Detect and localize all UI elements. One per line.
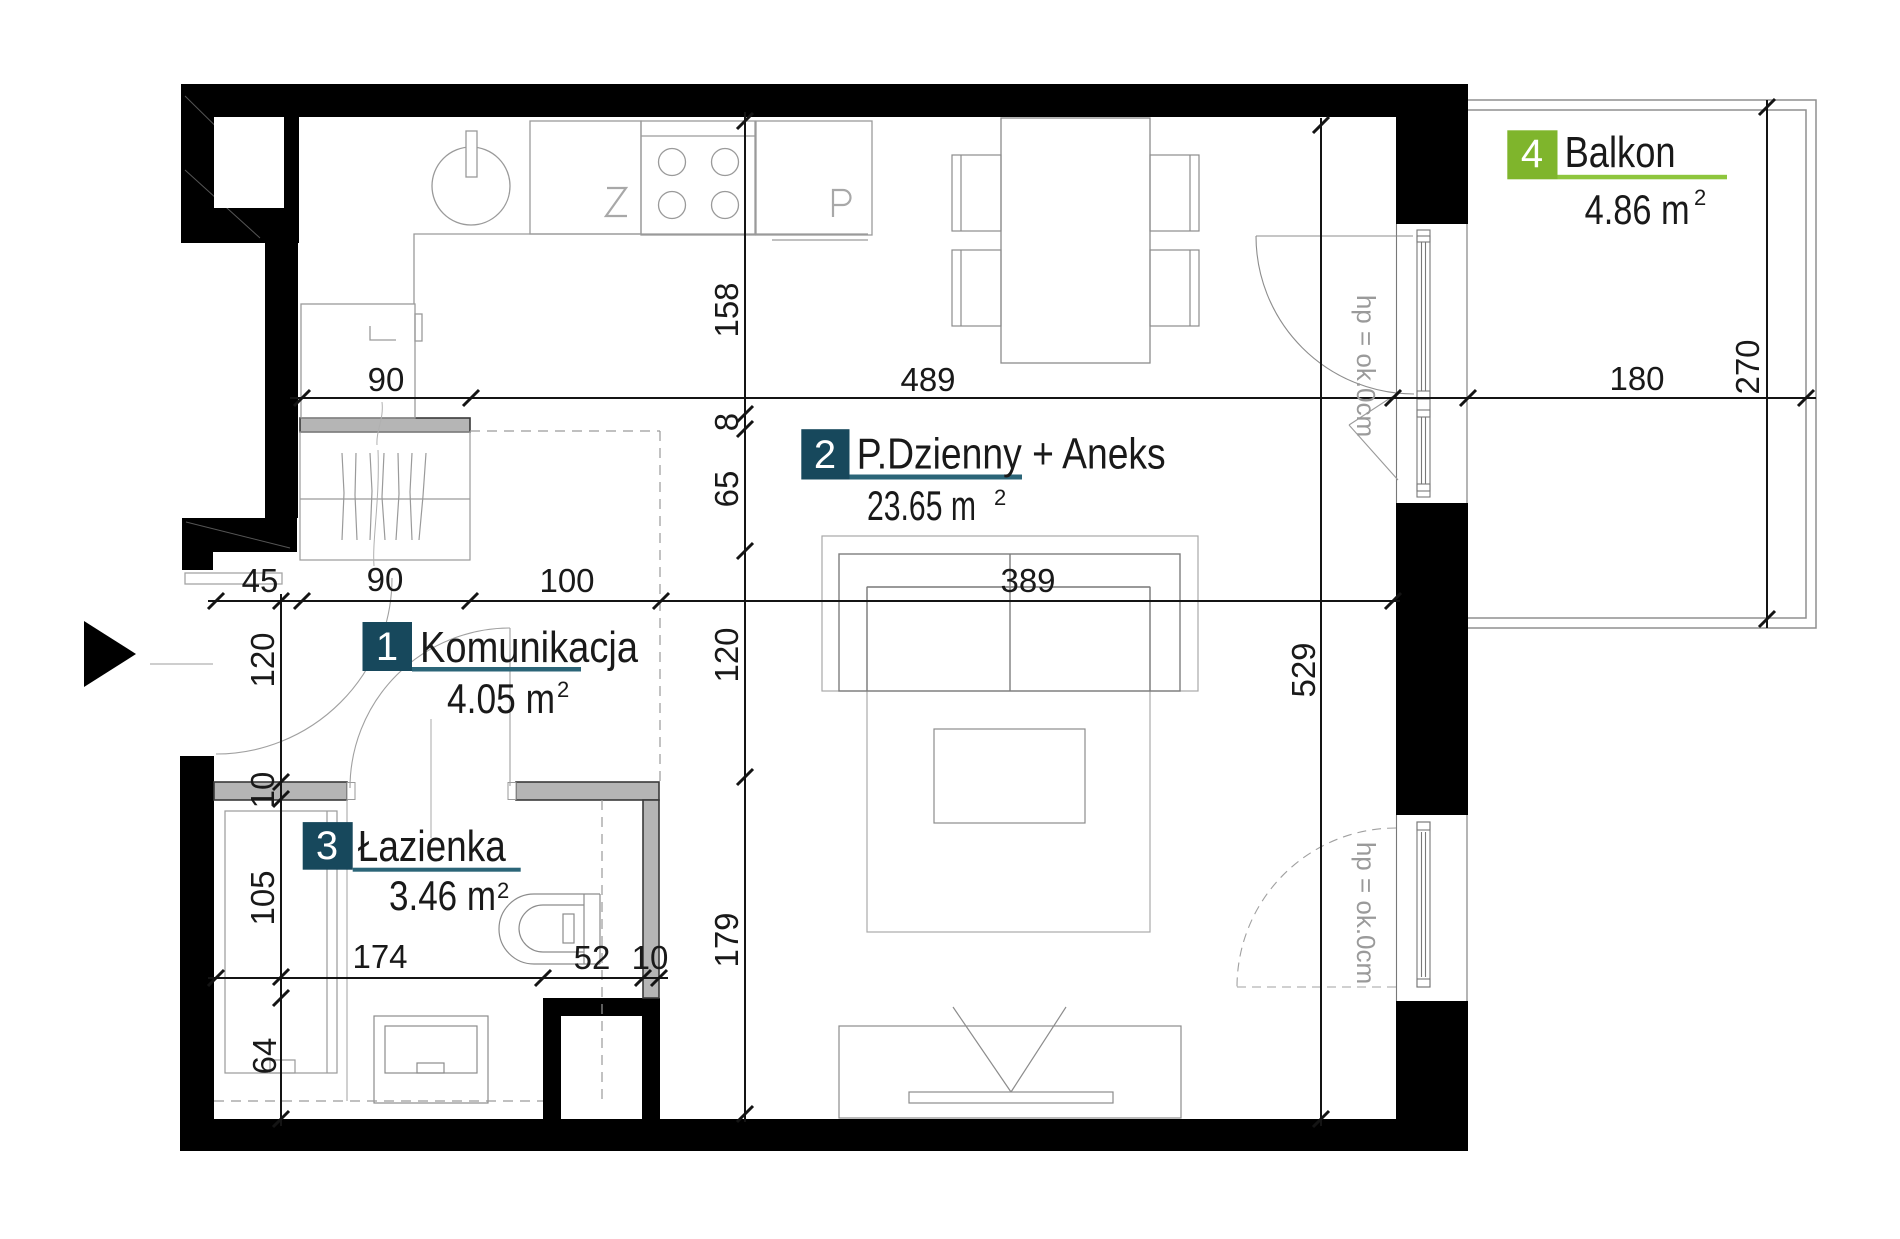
svg-text:hp = ok.0cm: hp = ok.0cm [1351, 295, 1381, 437]
svg-text:4.05 m: 4.05 m [447, 675, 555, 722]
svg-text:90: 90 [367, 561, 404, 598]
svg-text:3: 3 [316, 824, 338, 868]
svg-text:65: 65 [708, 471, 745, 508]
svg-text:52: 52 [574, 939, 611, 976]
svg-text:P.Dzienny + Aneks: P.Dzienny + Aneks [857, 430, 1166, 479]
svg-text:hp = ok.0cm: hp = ok.0cm [1351, 842, 1381, 984]
svg-text:389: 389 [1000, 562, 1055, 599]
svg-text:10: 10 [632, 939, 669, 976]
svg-text:2: 2 [1694, 185, 1706, 210]
svg-text:2: 2 [994, 485, 1006, 510]
svg-text:10: 10 [244, 772, 281, 809]
svg-text:2: 2 [557, 677, 569, 702]
svg-text:Łazienka: Łazienka [358, 822, 506, 871]
svg-text:529: 529 [1285, 642, 1322, 697]
svg-text:489: 489 [900, 361, 955, 398]
svg-text:90: 90 [368, 361, 405, 398]
svg-text:45: 45 [242, 562, 279, 599]
svg-text:158: 158 [708, 282, 745, 337]
svg-text:23.65 m: 23.65 m [867, 482, 976, 529]
svg-text:4.86 m: 4.86 m [1585, 186, 1690, 233]
svg-text:Balkon: Balkon [1565, 128, 1676, 177]
svg-text:105: 105 [244, 870, 281, 925]
svg-text:2: 2 [497, 878, 509, 903]
svg-text:180: 180 [1609, 360, 1664, 397]
svg-text:120: 120 [244, 632, 281, 687]
svg-text:3.46 m: 3.46 m [389, 872, 496, 919]
svg-text:270: 270 [1729, 339, 1766, 394]
svg-text:179: 179 [708, 912, 745, 967]
svg-text:Komunikacja: Komunikacja [420, 623, 638, 672]
svg-text:2: 2 [814, 433, 836, 477]
svg-text:120: 120 [708, 627, 745, 682]
svg-text:100: 100 [539, 562, 594, 599]
svg-text:174: 174 [352, 938, 407, 975]
svg-text:64: 64 [246, 1038, 283, 1075]
svg-text:8: 8 [708, 413, 745, 431]
svg-text:1: 1 [376, 625, 398, 669]
svg-text:4: 4 [1521, 132, 1543, 176]
